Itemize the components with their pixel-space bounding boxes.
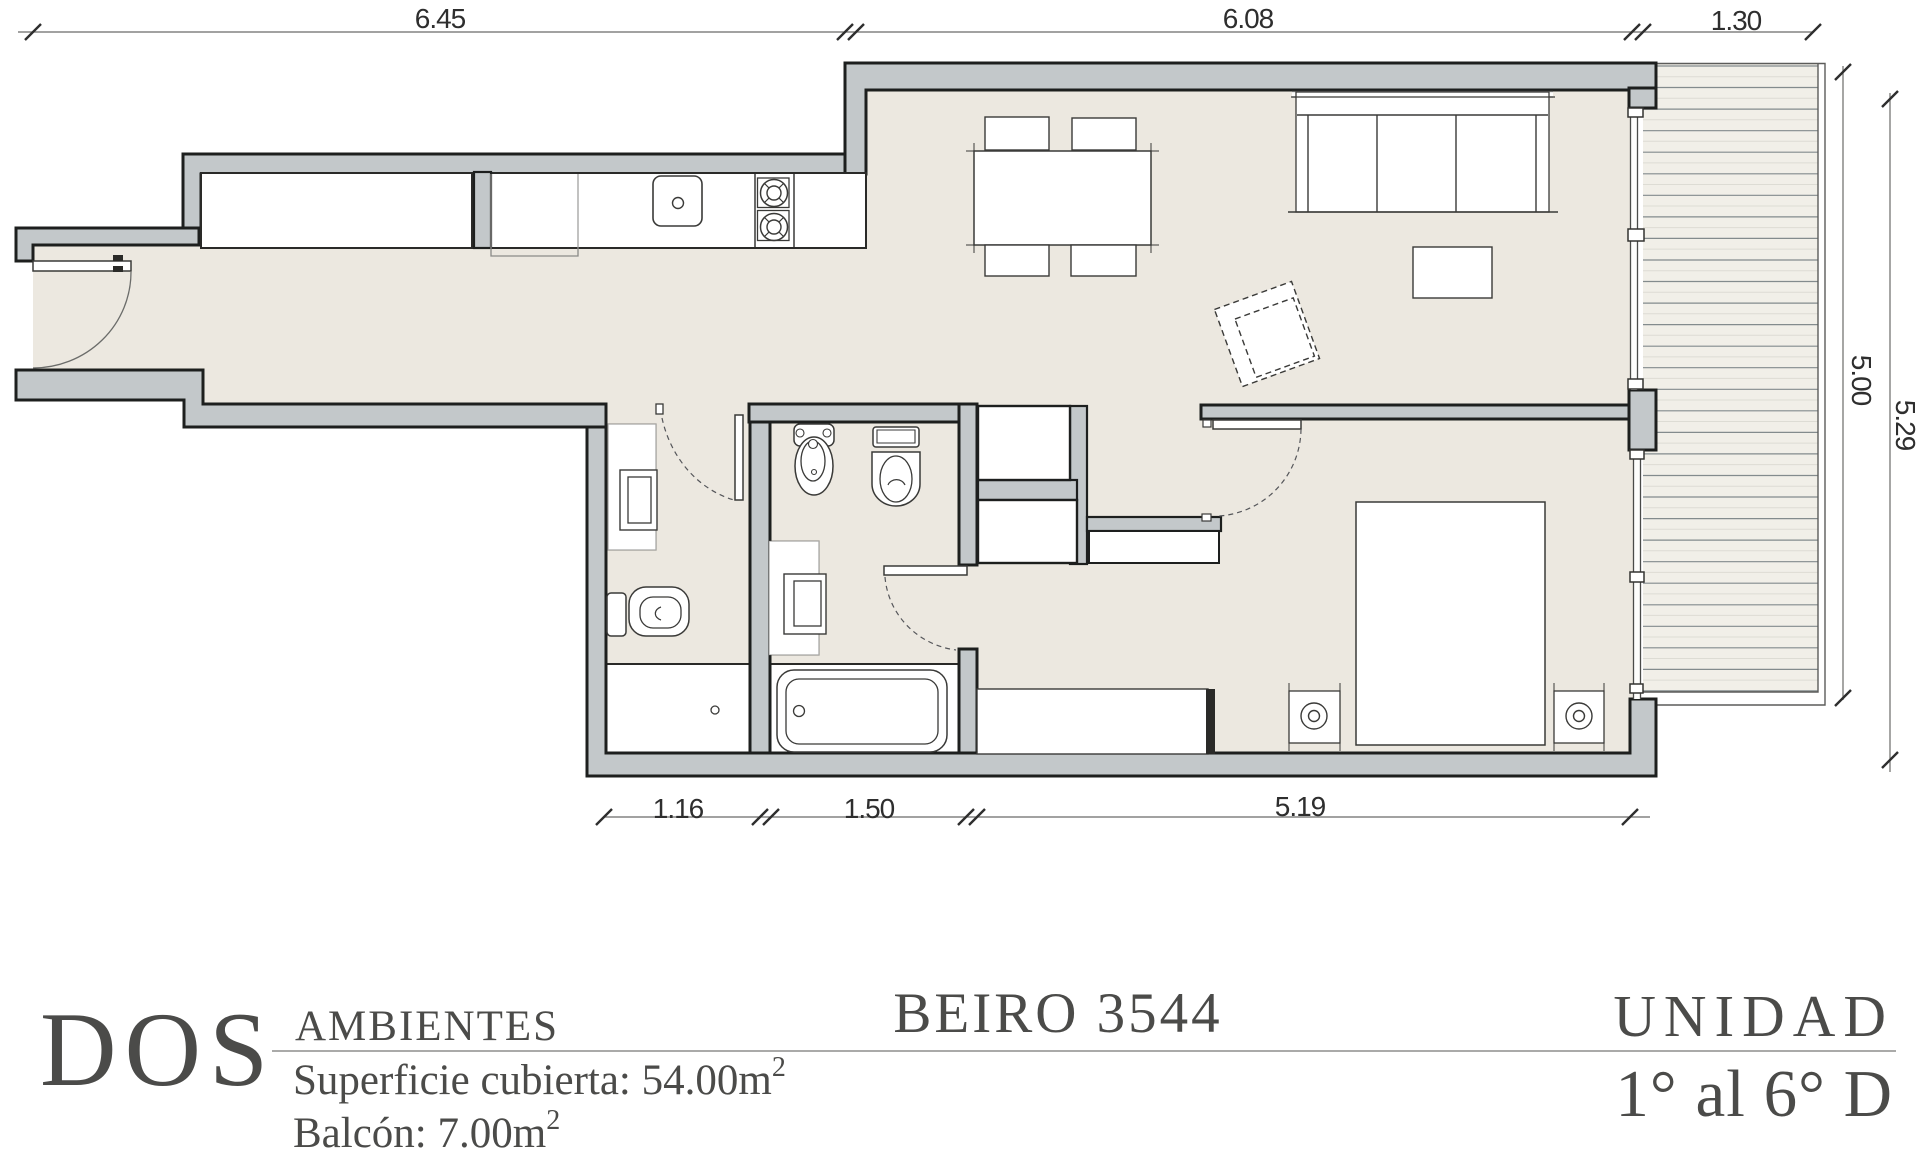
svg-text:DOS: DOS xyxy=(40,991,276,1108)
svg-text:1° al 6° D: 1° al 6° D xyxy=(1615,1057,1893,1131)
svg-text:1.30: 1.30 xyxy=(1711,5,1762,36)
svg-text:1.16: 1.16 xyxy=(653,793,704,824)
svg-text:BEIRO 3544: BEIRO 3544 xyxy=(893,982,1222,1045)
svg-text:5.19: 5.19 xyxy=(1275,791,1326,822)
svg-text:6.45: 6.45 xyxy=(415,3,466,34)
svg-text:5.29: 5.29 xyxy=(1890,400,1920,451)
svg-text:Superficie cubierta: 54.00m2: Superficie cubierta: 54.00m2 xyxy=(293,1052,786,1104)
svg-text:AMBIENTES: AMBIENTES xyxy=(295,1003,559,1050)
svg-text:UNIDAD: UNIDAD xyxy=(1613,983,1894,1049)
svg-text:5.00: 5.00 xyxy=(1846,355,1877,406)
svg-text:1.50: 1.50 xyxy=(844,793,895,824)
svg-text:6.08: 6.08 xyxy=(1223,3,1274,34)
svg-text:Balcón: 7.00m2: Balcón: 7.00m2 xyxy=(293,1105,560,1154)
